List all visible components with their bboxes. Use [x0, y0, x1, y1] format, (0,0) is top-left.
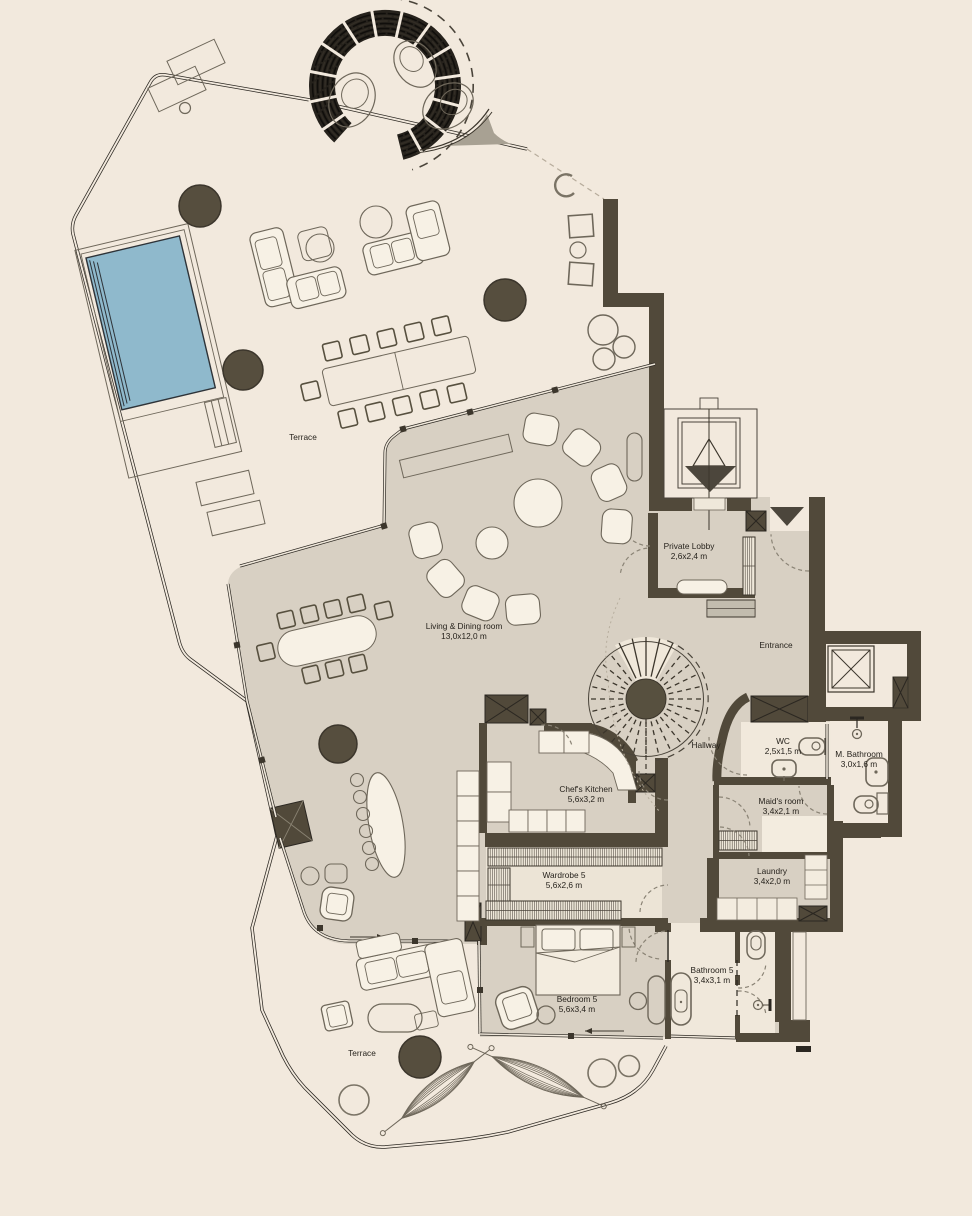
svg-text:Maid's room: Maid's room — [759, 796, 804, 806]
svg-text:Chef's Kitchen: Chef's Kitchen — [559, 784, 613, 794]
svg-text:Private Lobby: Private Lobby — [664, 541, 716, 551]
svg-text:Hallway: Hallway — [691, 740, 721, 750]
svg-text:5,6x2,6 m: 5,6x2,6 m — [546, 880, 583, 890]
svg-text:3,4x3,1 m: 3,4x3,1 m — [694, 975, 731, 985]
svg-text:Living & Dining room: Living & Dining room — [426, 621, 503, 631]
svg-text:3,0x1,6 m: 3,0x1,6 m — [841, 759, 878, 769]
svg-text:Laundry: Laundry — [757, 866, 788, 876]
svg-text:5,6x3,2 m: 5,6x3,2 m — [568, 794, 605, 804]
svg-text:M. Bathroom: M. Bathroom — [835, 749, 883, 759]
svg-text:Bedroom 5: Bedroom 5 — [557, 994, 598, 1004]
svg-text:5,6x3,4 m: 5,6x3,4 m — [559, 1004, 596, 1014]
svg-text:3,4x2,0 m: 3,4x2,0 m — [754, 876, 791, 886]
svg-text:2,5x1,5 m: 2,5x1,5 m — [765, 746, 802, 756]
svg-text:Wardrobe 5: Wardrobe 5 — [542, 870, 585, 880]
svg-text:13,0x12,0 m: 13,0x12,0 m — [441, 631, 487, 641]
svg-text:Entrance: Entrance — [759, 640, 793, 650]
svg-text:WC: WC — [776, 736, 790, 746]
svg-text:2,6x2,4 m: 2,6x2,4 m — [671, 551, 708, 561]
svg-text:Terrace: Terrace — [348, 1048, 376, 1058]
svg-text:3,4x2,1 m: 3,4x2,1 m — [763, 806, 800, 816]
svg-text:Terrace: Terrace — [289, 432, 317, 442]
svg-text:Bathroom 5: Bathroom 5 — [691, 965, 734, 975]
